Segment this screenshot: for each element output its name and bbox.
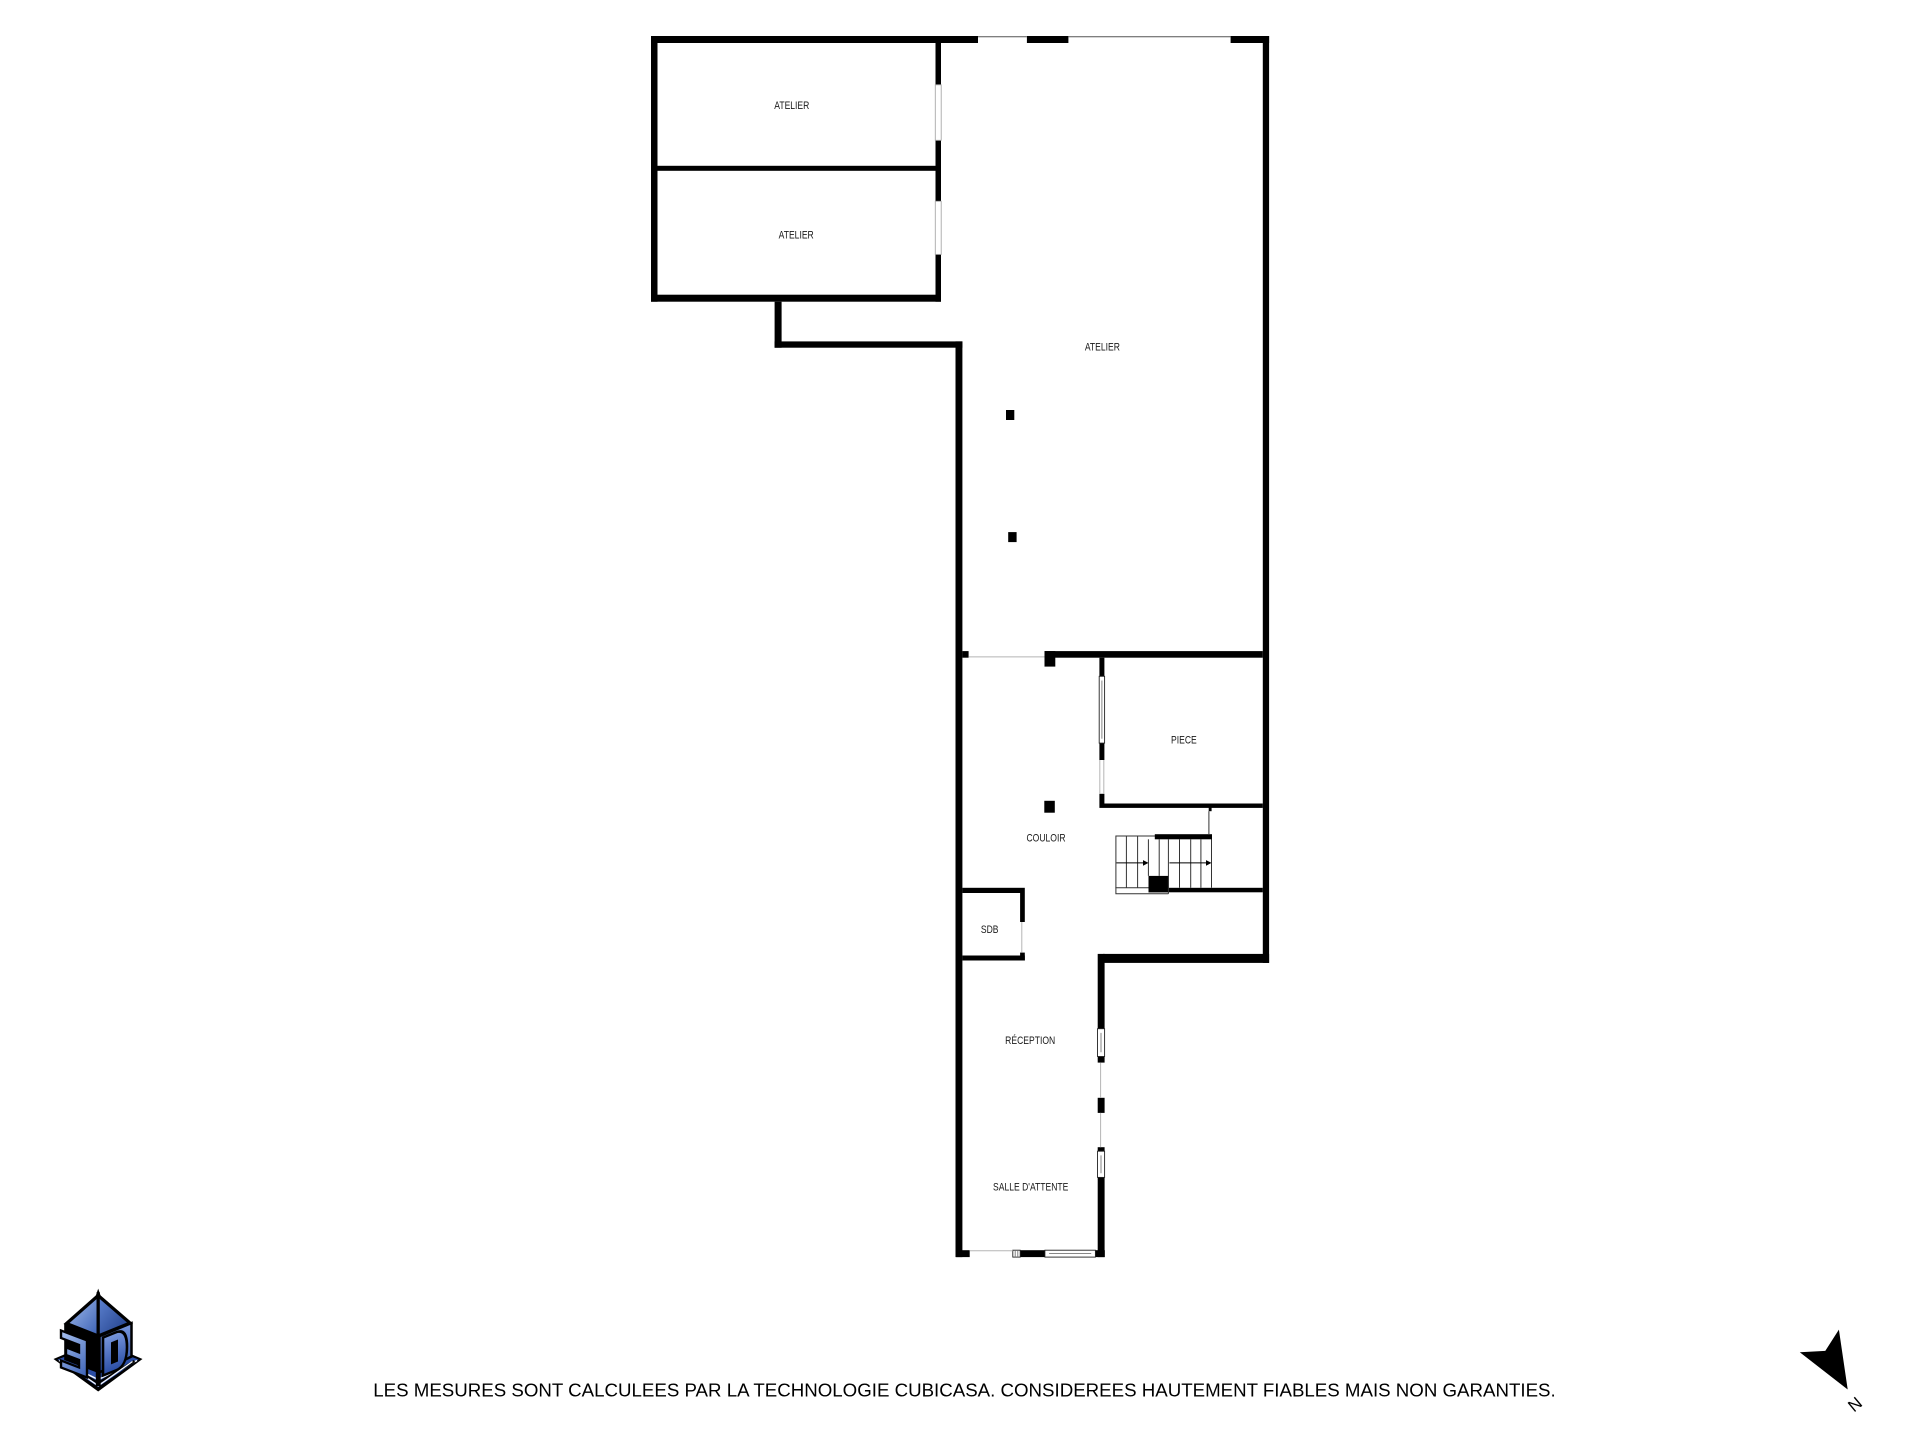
svg-text:LES MESURES SONT CALCULEES PAR: LES MESURES SONT CALCULEES PAR LA TECHNO… — [373, 1380, 1555, 1401]
svg-text:ATELIER: ATELIER — [779, 229, 814, 241]
svg-text:ATELIER: ATELIER — [774, 100, 809, 112]
svg-text:COULOIR: COULOIR — [1026, 832, 1065, 844]
svg-text:RÉCEPTION: RÉCEPTION — [1005, 1035, 1055, 1047]
svg-text:SALLE D'ATTENTE: SALLE D'ATTENTE — [993, 1181, 1069, 1193]
svg-text:PIECE: PIECE — [1171, 734, 1197, 746]
svg-text:ATELIER: ATELIER — [1085, 342, 1120, 354]
svg-text:SDB: SDB — [981, 924, 999, 936]
